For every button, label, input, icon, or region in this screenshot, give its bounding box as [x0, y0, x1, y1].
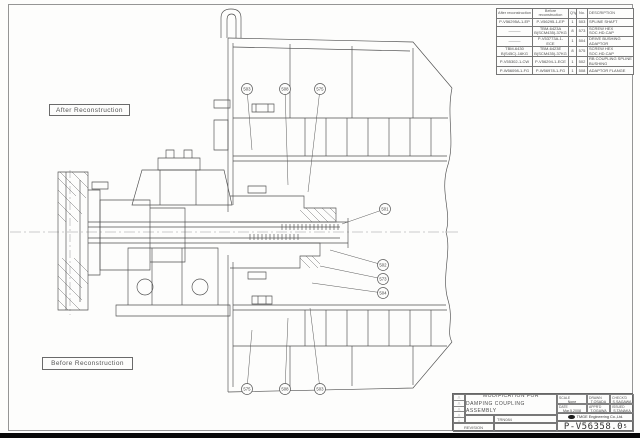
parts-table-row: ———TBM-6423A B(SCM435)-37KG8573SCREW HEX… — [497, 26, 634, 36]
parts-table-cell: 573 — [577, 26, 588, 36]
svg-text:573: 573 — [379, 277, 387, 282]
svg-text:508: 508 — [281, 87, 289, 92]
parts-table-cell: P-V56295-1-EP — [533, 18, 569, 26]
title-block: △ △ △ △ △ MODIFICATION FOR DAMPING COUPL… — [452, 393, 633, 431]
parts-table-cell: DRIVE BUSHING ADAPTOR — [588, 36, 634, 46]
scale-label: SCALE — [559, 396, 570, 400]
page-edge-shadow — [0, 433, 640, 438]
parts-table-cell: SCREW HEX SOC.HD.CAP — [588, 47, 634, 57]
scale-field: SCALE None — [557, 394, 587, 404]
parts-table-row: P-V55302-1-CWP-V56294-1-ECE1502RB COUPLI… — [497, 57, 634, 67]
parts-table-cell: TBM-6430 B(S45C)-16KG — [497, 47, 533, 57]
parts-table-cell: 1 — [569, 67, 577, 75]
parts-table-cell: 8 — [569, 26, 577, 36]
parts-table-cell: 504 — [577, 36, 588, 46]
parts-table-cell: 575 — [577, 47, 588, 57]
parts-table-body: P-V56295A-1-EPP-V56295-1-EP1503SPLINE SH… — [497, 18, 634, 75]
drawing-number-suffix: 5 — [624, 424, 628, 430]
svg-text:503: 503 — [243, 87, 251, 92]
drawing-sheet: 503508575501502573504575508503 After Rec… — [0, 0, 640, 440]
parts-table-cell: ——— — [497, 26, 533, 36]
balloon: 503 — [242, 84, 253, 151]
before-reconstruction-label: Before Reconstruction — [42, 357, 133, 370]
column-header-before: Before reconstruction — [533, 9, 569, 19]
parts-table-cell: RB COUPLING SPLINE BUSHING — [588, 57, 634, 67]
drawing-title: MODIFICATION FOR DAMPING COUPLING ASSEMB… — [465, 394, 557, 415]
parts-table-cell: ADAPTOR FLANGE — [588, 67, 634, 75]
parts-table-cell: P-V55302-1-CW — [497, 57, 533, 67]
shaft-assembly — [88, 104, 348, 316]
revision-strip: △ △ △ △ △ — [453, 394, 465, 423]
drawing-number: P-V56358.05 — [557, 421, 634, 432]
parts-table-cell: 502 — [577, 57, 588, 67]
parts-table-cell: ——— — [497, 36, 533, 46]
svg-text:501: 501 — [381, 207, 389, 212]
parts-table-cell: P-W56098-1-FG — [497, 67, 533, 75]
column-header-qty: Q'ty — [569, 9, 577, 19]
balloon: 575 — [242, 330, 253, 395]
parts-table-row: P-V56295A-1-EPP-V56295-1-EP1503SPLINE SH… — [497, 18, 634, 26]
issued-field: ISSUED S.TANAKA — [610, 404, 634, 414]
drawing-title-line2: DAMPING COUPLING ASSEMBLY — [466, 401, 556, 415]
company-logo-icon — [568, 415, 575, 420]
parts-table-row: TBM-6430 B(S45C)-16KGTBM-6423E B(SCM435)… — [497, 47, 634, 57]
drawing-number-value: P-V56358.0 — [564, 422, 623, 432]
company-strip: TMGE Engineering Co.,Ltd. — [557, 413, 634, 421]
checked-label: CHECK'D — [612, 396, 627, 400]
svg-text:575: 575 — [243, 387, 251, 392]
balloon: 502 — [330, 250, 389, 271]
drawing-title-line1: MODIFICATION FOR — [483, 394, 539, 401]
column-header-after: After reconstruction — [497, 9, 533, 19]
housing-upper — [214, 38, 452, 232]
drawn-label: DRAWN — [589, 396, 602, 400]
title-block-spacer — [494, 423, 557, 432]
parts-table-header-row: After reconstruction Before reconstructi… — [497, 9, 634, 19]
parts-table: After reconstruction Before reconstructi… — [496, 8, 634, 75]
parts-table-cell: TBM-6423E B(SCM435)-37KG — [533, 47, 569, 57]
parts-table-cell: SCREW HEX SOC.HD.CAP — [588, 26, 634, 36]
balloon: 573 — [320, 266, 389, 285]
parts-table-cell: 503 — [577, 18, 588, 26]
parts-table-cell: TBM-6423A B(SCM435)-37KG — [533, 26, 569, 36]
balloon: 508 — [280, 318, 291, 395]
parts-table-cell: 8 — [569, 47, 577, 57]
column-header-description: DESCRIPTION — [588, 9, 634, 19]
parts-table-cell: SPLINE SHAFT — [588, 18, 634, 26]
date-field: DATE Mar.5.2008 — [557, 404, 587, 414]
balloon: 575 — [308, 84, 326, 193]
title-block-spacer — [465, 415, 494, 423]
svg-text:504: 504 — [379, 291, 387, 296]
lifting-eye — [221, 9, 241, 38]
parts-table-cell: P-W56978-1-FG — [533, 67, 569, 75]
parts-table-cell: P-V53773A-1-ECE — [533, 36, 569, 46]
svg-text:502: 502 — [379, 263, 387, 268]
parts-table-cell: 1 — [569, 57, 577, 67]
balloon: 504 — [312, 283, 389, 299]
company-name: TMGE Engineering Co.,Ltd. — [577, 415, 624, 419]
drawn-field: DRAWN T.OSADA — [587, 394, 610, 404]
svg-text:503: 503 — [316, 387, 324, 392]
parts-table-cell: 1 — [569, 36, 577, 46]
parts-table-row: ———P-V53773A-1-ECE1504DRIVE BUSHING ADAP… — [497, 36, 634, 46]
parts-table-row: P-W56098-1-FGP-W56978-1-FG1508ADAPTOR FL… — [497, 67, 634, 75]
balloon: 508 — [280, 84, 291, 186]
revision-label: REVISION — [453, 423, 494, 432]
parts-table-cell: P-V56294-1-ECE — [533, 57, 569, 67]
housing-lower — [228, 232, 452, 392]
end-flange — [58, 172, 100, 310]
balloon: 501 — [342, 204, 391, 225]
parts-table-cell: P-V56295A-1-EP — [497, 18, 533, 26]
column-header-itemno: No. — [577, 9, 588, 19]
parts-table-cell: 508 — [577, 67, 588, 75]
checked-field: CHECK'D S.SAGAWA — [610, 394, 634, 404]
svg-text:575: 575 — [316, 87, 324, 92]
after-reconstruction-label: After Reconstruction — [49, 104, 130, 116]
doc-code: TRN084 — [494, 415, 557, 423]
approved-field: APPR'D T.OGAWA — [587, 404, 610, 414]
parts-table-cell: 1 — [569, 18, 577, 26]
balloon: 503 — [310, 308, 326, 395]
svg-text:508: 508 — [281, 387, 289, 392]
